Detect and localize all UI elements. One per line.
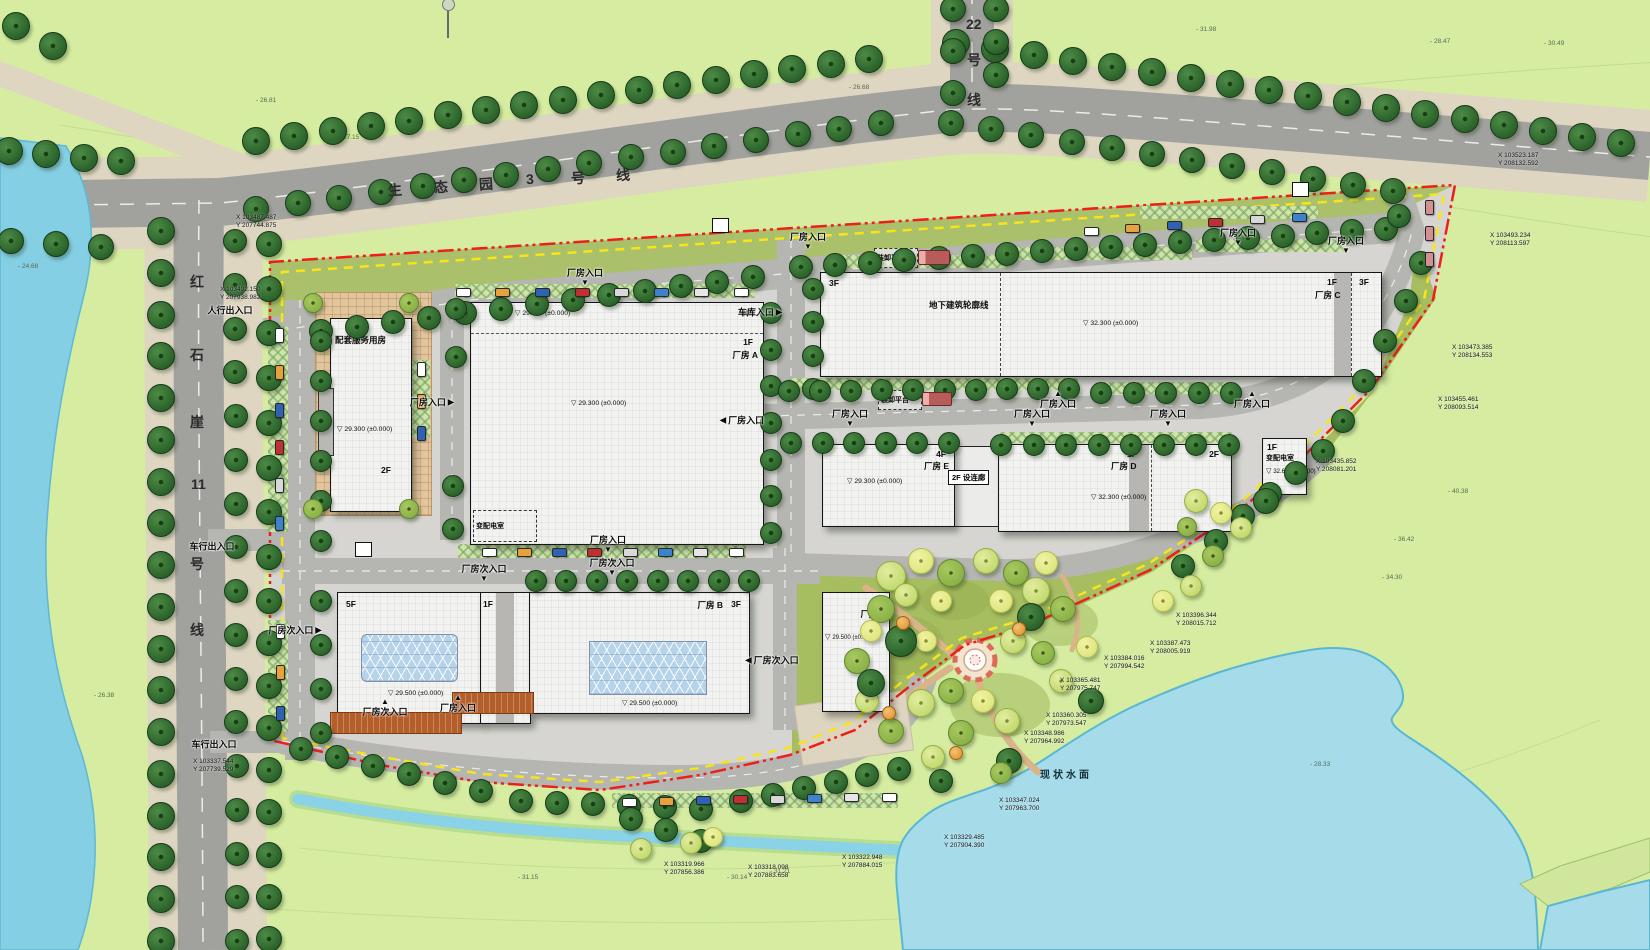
tree (1133, 233, 1157, 257)
tree (147, 760, 175, 788)
gate-post (1292, 182, 1309, 197)
tree (1076, 636, 1098, 658)
tree (225, 885, 249, 909)
parked-car (575, 288, 590, 297)
parked-car (275, 478, 284, 493)
a-substation-label: 变配电室 (474, 521, 504, 531)
tree (1098, 53, 1126, 81)
entrance-label: 厂房次入口▶ (268, 624, 321, 637)
entrance-arrow-icon: ▼ (1342, 247, 1350, 254)
entrance-arrow-icon: ▼ (480, 575, 488, 582)
tree (669, 274, 693, 298)
tree (908, 548, 934, 574)
tree (1380, 178, 1406, 204)
tree (223, 317, 247, 341)
tree (303, 499, 323, 519)
tree (472, 96, 500, 124)
road-name-char: 石 (190, 345, 204, 365)
coordinate-label: X 103322.948Y 207884.015 (842, 854, 882, 871)
tree (2, 12, 30, 40)
tree (256, 757, 282, 783)
tree (225, 929, 249, 950)
tree (410, 173, 436, 199)
tree (1284, 461, 1308, 485)
tree (256, 544, 282, 570)
road-name-char: 生 (387, 180, 402, 201)
tree (242, 127, 270, 155)
tree (445, 298, 467, 320)
tree (310, 410, 332, 432)
coordinate-label: X 103493.234Y 208113.597 (1490, 232, 1530, 249)
tree (1202, 545, 1224, 567)
tree (147, 384, 175, 412)
c-floors-left: 3F (829, 278, 839, 288)
parked-car (1125, 224, 1140, 233)
parked-car (1084, 227, 1099, 236)
coordinate-label: X 103396.344Y 208015.712 (1176, 612, 1216, 629)
a-substation-box: 变配电室 (473, 510, 537, 542)
entrance-label: 厂房入口▼ (790, 230, 826, 250)
tree (789, 255, 813, 279)
entrance-arrow-icon: ▼ (846, 420, 854, 427)
tree (929, 769, 953, 793)
parked-car (456, 288, 471, 297)
entrance-label: 厂房入口▼ (590, 533, 626, 553)
tree (973, 548, 999, 574)
c-elevation: 32.300 (±0.000) (1083, 319, 1138, 327)
tree (1023, 434, 1045, 456)
entrance-label: 厂房入口▼ (1150, 407, 1186, 427)
tree (545, 791, 569, 815)
tree (147, 551, 175, 579)
tree (1210, 502, 1232, 524)
spot-elevation: - 28.33 (1310, 761, 1330, 768)
tree (708, 570, 730, 592)
tree (860, 620, 882, 642)
tree (1123, 382, 1145, 404)
d-dashed-line (1151, 445, 1152, 531)
tree (224, 492, 248, 516)
parked-car (729, 548, 744, 557)
tree (940, 80, 966, 106)
parked-car (844, 793, 859, 802)
tree (663, 71, 691, 99)
service-elevation: 29.300 (±0.000) (337, 425, 392, 433)
entrance-label: ▲厂房入口 (1234, 390, 1270, 410)
tree (147, 426, 175, 454)
entrance-arrow-icon: ▶ (776, 309, 782, 316)
parked-car (654, 288, 669, 297)
tree (680, 832, 702, 854)
tree (660, 139, 686, 165)
tree (535, 156, 561, 182)
tree (983, 29, 1009, 55)
road-name-char: 线 (967, 90, 981, 110)
coordinate-label: X 103473.385Y 208134.553 (1452, 344, 1492, 361)
parked-car (1425, 252, 1434, 267)
tree (310, 450, 332, 472)
tree (399, 293, 419, 313)
tree (741, 265, 765, 289)
tree (654, 818, 678, 842)
tree (88, 234, 114, 260)
tree (225, 842, 249, 866)
parked-car (275, 328, 284, 343)
b5f-skylight (361, 634, 458, 682)
tree (921, 745, 945, 769)
tree (812, 432, 834, 454)
tree (147, 635, 175, 663)
c-floors-right: 3F (1359, 277, 1369, 287)
tree (224, 579, 248, 603)
spot-elevation: - 28.47 (1430, 38, 1450, 45)
tree (43, 231, 69, 257)
spot-elevation: - 30.49 (1544, 40, 1564, 47)
tree (937, 559, 965, 587)
entrance-label: 车行出入口 (191, 738, 236, 751)
tree (1177, 517, 1197, 537)
spot-elevation: - 36.42 (1394, 536, 1414, 543)
road-name-char: 11 (191, 476, 206, 492)
parked-car (659, 797, 674, 806)
parked-car (696, 796, 711, 805)
tree (1155, 382, 1177, 404)
tree (1529, 117, 1557, 145)
tree (147, 593, 175, 621)
tree (619, 807, 643, 831)
tree (256, 926, 282, 950)
tree (1180, 575, 1202, 597)
tree (868, 110, 894, 136)
tree (875, 432, 897, 454)
parked-car (552, 548, 567, 557)
underground-outline-line (471, 333, 763, 334)
coordinate-label: X 103492.150Y 207938.982 (220, 286, 260, 303)
tree (647, 570, 669, 592)
tree (990, 762, 1012, 784)
parked-car (658, 548, 673, 557)
parked-car (495, 288, 510, 297)
tree (760, 522, 782, 544)
tree (509, 789, 533, 813)
tree (938, 110, 964, 136)
tree (1411, 100, 1439, 128)
parked-car (275, 403, 284, 418)
tree (743, 127, 769, 153)
entrance-arrow-icon: ▲ (1054, 390, 1062, 397)
tree (303, 293, 323, 313)
tree (1152, 590, 1174, 612)
entrance-arrow-icon: ▼ (581, 279, 589, 286)
coordinate-label: X 103337.544Y 207739.529 (193, 758, 233, 775)
tree (1255, 76, 1283, 104)
entrance-arrow-icon: ▶ (448, 399, 454, 406)
parked-car (622, 798, 637, 807)
tree (1253, 488, 1279, 514)
tree (1099, 235, 1123, 259)
tree (994, 708, 1020, 734)
b-skylight (589, 641, 707, 695)
tree (280, 122, 308, 150)
corridor-text: 2F 设连廊 (952, 473, 985, 482)
tree (581, 792, 605, 816)
water-label: 现状水面 (1040, 766, 1092, 781)
tree (1055, 434, 1077, 456)
entrance-arrow-icon: ▼ (1164, 420, 1172, 427)
spot-elevation: - 40.38 (1448, 488, 1468, 495)
tree (817, 50, 845, 78)
tree (802, 278, 824, 300)
tree (1177, 64, 1205, 92)
tree (703, 827, 723, 847)
entrance-arrow-icon: ▶ (315, 627, 321, 634)
entrance-arrow-icon: ◀ (745, 657, 751, 664)
parked-car (693, 548, 708, 557)
a-name: 厂房 A (732, 349, 758, 361)
road-name-char: 崖 (190, 412, 204, 432)
c-name: 厂房 C (1315, 289, 1341, 301)
entrance-label: 厂房次入口▼ (589, 556, 634, 576)
entrance-arrow-icon: ▲ (381, 698, 389, 705)
tree (1099, 135, 1125, 161)
tree (397, 762, 421, 786)
tree (1607, 129, 1635, 157)
parked-car (1425, 226, 1434, 241)
c-underground-line-2 (1351, 273, 1352, 376)
coordinate-label: X 103360.305Y 207973.547 (1046, 712, 1086, 729)
e-elevation: 29.300 (±0.000) (847, 477, 902, 485)
tree (867, 595, 895, 623)
entrance-arrow-icon: ▲ (454, 694, 462, 701)
tree (224, 448, 248, 472)
road-name-char: 号 (967, 50, 981, 70)
entrance-label: ▲厂房入口 (440, 694, 476, 714)
road-name-char: 红 (190, 272, 204, 292)
parked-car (770, 795, 785, 804)
tree (971, 689, 995, 713)
tree (434, 101, 462, 129)
tree (930, 590, 952, 612)
building-c: 3F 地下建筑轮廓线 32.300 (±0.000) 1F 厂房 C 3F (820, 272, 1382, 377)
tree (824, 770, 848, 794)
tree (1333, 88, 1361, 116)
corridor-zone (953, 446, 1000, 527)
entrance-arrow-icon: ▲ (1248, 390, 1256, 397)
spot-elevation: - 24.68 (18, 263, 38, 270)
entrance-arrow-icon: ▼ (1028, 420, 1036, 427)
tree (225, 798, 249, 822)
road-name-char: 园 (478, 174, 493, 195)
tree (147, 802, 175, 830)
tree (940, 38, 966, 64)
tree (285, 190, 311, 216)
a-elevation: 29.300 (±0.000) (571, 399, 626, 407)
tree (1451, 105, 1479, 133)
b-elevation: 29.500 (±0.000) (622, 699, 677, 707)
c-underground-line-1 (1000, 273, 1001, 376)
tree (326, 185, 352, 211)
fountain (955, 640, 995, 680)
tree (147, 468, 175, 496)
tree (1059, 47, 1087, 75)
tree (809, 380, 831, 402)
tree (677, 570, 699, 592)
tree (433, 771, 457, 795)
road-name-char: 22 (966, 16, 982, 32)
tree (224, 404, 248, 428)
tree (1184, 489, 1208, 513)
spot-elevation: - 34.30 (1382, 574, 1402, 581)
parked-car (276, 706, 285, 721)
gate-post (355, 542, 372, 557)
tree (469, 779, 493, 803)
tree (147, 259, 175, 287)
parked-car (1167, 221, 1182, 230)
tree (361, 754, 385, 778)
road-name-char: 号 (570, 168, 585, 189)
tree (147, 301, 175, 329)
flag-pole-icon (447, 2, 449, 38)
tree (417, 306, 441, 330)
tree (1034, 551, 1058, 575)
entrance-label: 人行出入口 (207, 304, 252, 317)
tree (224, 667, 248, 691)
entrance-label: 厂房入口▼ (1220, 226, 1256, 246)
building-service: 3F 配套服务用房 29.300 (±0.000) 2F (330, 318, 412, 512)
tree (39, 32, 67, 60)
parked-car (275, 365, 284, 380)
parked-car (807, 794, 822, 803)
tree (256, 588, 282, 614)
tree (965, 379, 987, 401)
road-name-char: 态 (433, 177, 448, 198)
coordinate-label: X 103384.016Y 207994.542 (1104, 655, 1144, 672)
a-floors-wing: 1F (743, 337, 753, 347)
b5f-elevation: 29.500 (±0.000) (388, 689, 443, 697)
tree (1179, 147, 1205, 173)
tree (1294, 82, 1322, 110)
tree (1088, 434, 1110, 456)
tree (760, 449, 782, 471)
tree (823, 253, 847, 277)
parked-car (417, 426, 426, 441)
tree (310, 370, 332, 392)
tree (760, 339, 782, 361)
b-floors: 3F (731, 599, 741, 609)
parked-car (517, 548, 532, 557)
tree (882, 706, 896, 720)
road-name-char: 线 (190, 620, 204, 640)
parked-car (417, 362, 426, 377)
parked-car (1292, 213, 1307, 222)
tree (310, 722, 332, 744)
c-underground-label: 地下建筑轮廓线 (929, 299, 989, 311)
tree (256, 231, 282, 257)
tree (310, 678, 332, 700)
tree (319, 117, 347, 145)
tree (961, 244, 985, 268)
b-name: 厂房 B (697, 599, 723, 611)
tree (147, 217, 175, 245)
d-floors-2f: 2F (1209, 449, 1219, 459)
parked-car (275, 440, 284, 455)
tree (442, 518, 464, 540)
entrance-label: 车库入口▶ (738, 306, 782, 319)
coordinate-label: X 103329.485Y 207904.390 (944, 834, 984, 851)
tree (857, 669, 885, 697)
coordinate-label: X 103318.098Y 207883.658 (748, 864, 788, 881)
tree (1490, 111, 1518, 139)
entrance-label: 厂房入口▼ (832, 407, 868, 427)
entrance-label: 厂房次入口▼ (461, 562, 506, 582)
tree (1031, 641, 1055, 665)
tree (630, 838, 652, 860)
tree (310, 530, 332, 552)
coordinate-label: X 103523.187Y 208132.592 (1498, 152, 1538, 169)
d-elevation: 32.300 (±0.000) (1091, 493, 1146, 501)
entrance-arrow-icon: ◀ (720, 417, 726, 424)
road-name-char: 号 (190, 554, 204, 574)
building-b: 厂房 B 3F 29.500 (±0.000) (529, 592, 750, 714)
tree (1340, 172, 1366, 198)
b5f-floors: 5F (346, 599, 356, 609)
entrance-label: 厂房入口▼ (1014, 407, 1050, 427)
road-name-char: 3 (525, 171, 534, 188)
tree (1168, 230, 1192, 254)
tree (983, 62, 1009, 88)
spot-elevation: - 31.15 (518, 874, 538, 881)
tree (147, 718, 175, 746)
road-name-char: 线 (615, 165, 630, 186)
building-e: 4F 厂房 E 29.300 (±0.000) (822, 444, 955, 527)
tree (896, 616, 910, 630)
parked-car (614, 288, 629, 297)
coordinate-label: X 103487.487Y 207744.875 (236, 214, 276, 231)
corridor-label: 2F 设连廊 (948, 470, 989, 485)
tree (256, 455, 282, 481)
tree (802, 345, 824, 367)
entrance-arrow-icon: ▼ (604, 546, 612, 553)
coordinate-label: X 103455.461Y 208093.514 (1438, 396, 1478, 413)
tree (1153, 434, 1175, 456)
tree (1139, 141, 1165, 167)
tree (224, 623, 248, 647)
tree (778, 380, 800, 402)
parked-car (882, 793, 897, 802)
tree (489, 297, 513, 321)
tree (949, 746, 963, 760)
tree (399, 499, 419, 519)
tree (147, 927, 175, 950)
tree (445, 346, 467, 368)
tree (738, 570, 760, 592)
tree (938, 678, 964, 704)
tree (1059, 129, 1085, 155)
tree (938, 432, 960, 454)
tree (1020, 41, 1048, 69)
tree (1331, 409, 1355, 433)
parked-car (1425, 200, 1434, 215)
entrance-label: 厂房入口▶ (410, 396, 454, 409)
tree (310, 590, 332, 612)
tree (345, 315, 369, 339)
parked-car (276, 665, 285, 680)
tree (70, 144, 98, 172)
spot-elevation: - 26.68 (849, 84, 869, 91)
coordinate-label: X 103387.473Y 208005.919 (1150, 640, 1190, 657)
tree (1387, 204, 1411, 228)
tree (256, 884, 282, 910)
